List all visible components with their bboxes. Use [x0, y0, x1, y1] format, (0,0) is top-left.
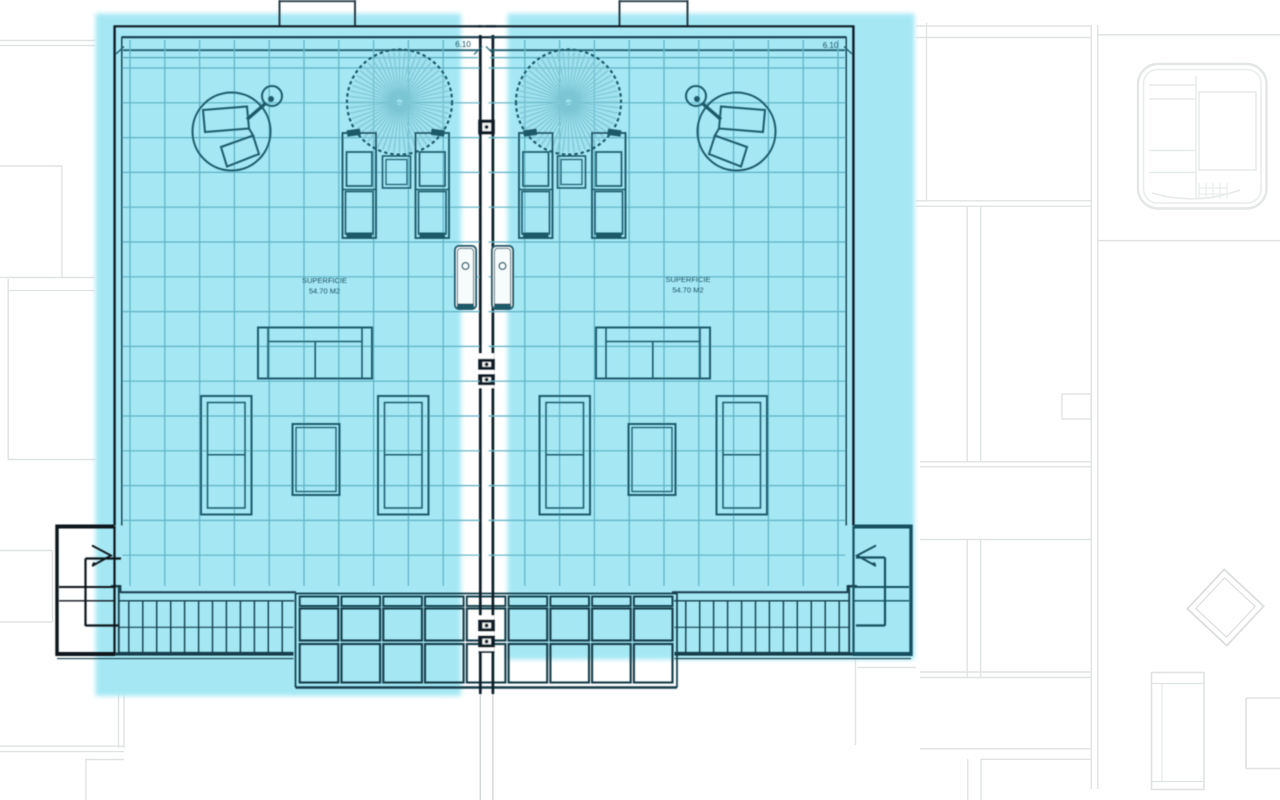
svg-text:6.10: 6.10: [455, 40, 471, 49]
svg-text:SUPERFICIE: SUPERFICIE: [665, 275, 710, 284]
svg-text:SUPERFICIE: SUPERFICIE: [302, 276, 347, 285]
svg-text:54.70 M2: 54.70 M2: [672, 286, 703, 295]
svg-text:6.10: 6.10: [823, 41, 839, 50]
svg-text:54.70 M2: 54.70 M2: [309, 287, 340, 296]
